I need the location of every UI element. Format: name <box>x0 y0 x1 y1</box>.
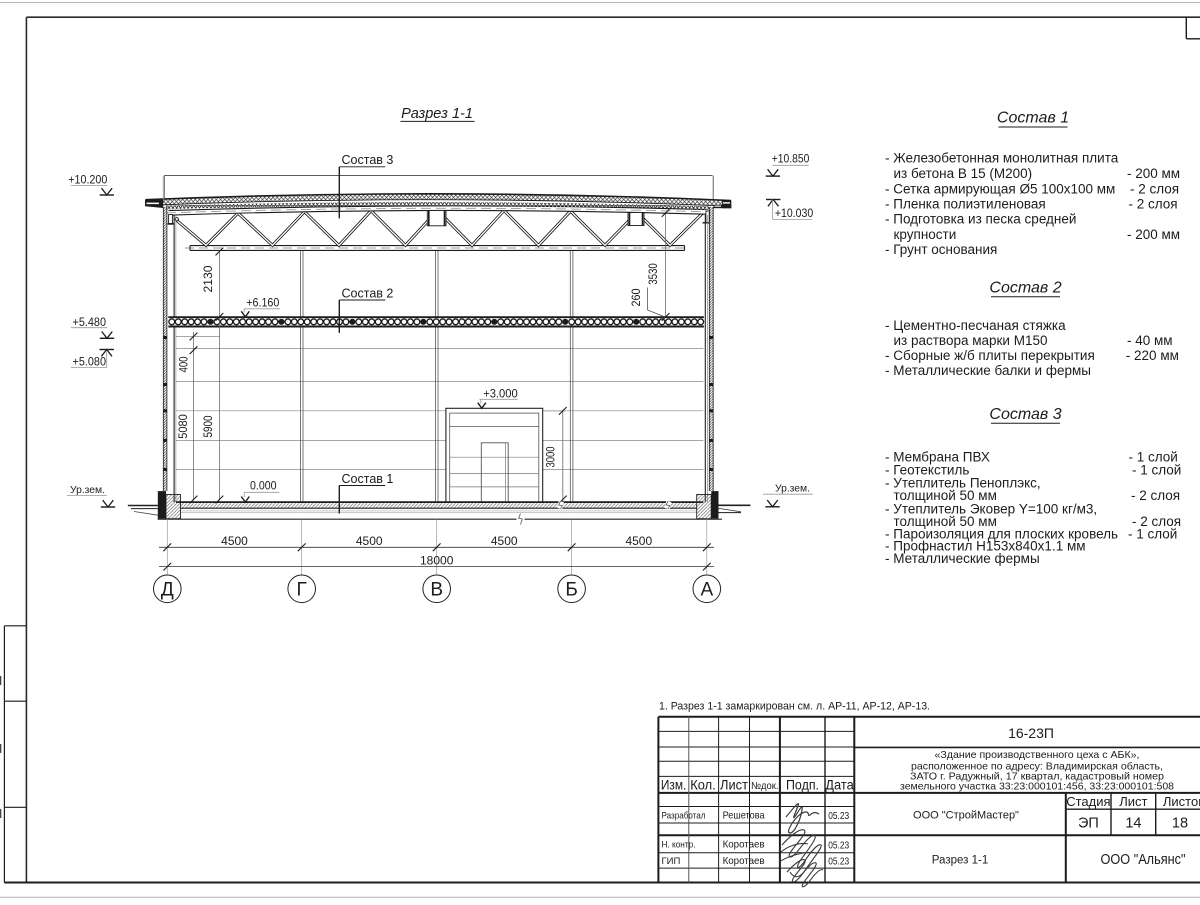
svg-text:ЭП: ЭП <box>1078 815 1099 831</box>
svg-text:Д: Д <box>161 579 174 600</box>
svg-text:- Сетка армирующая Ø5 100х100: - Сетка армирующая Ø5 100х100 мм <box>885 181 1115 196</box>
svg-text:- 1 слой: - 1 слой <box>1128 526 1177 541</box>
svg-text:ООО "Альянс": ООО "Альянс" <box>1101 852 1186 868</box>
svg-text:260: 260 <box>629 288 643 306</box>
svg-text:- 40 мм: - 40 мм <box>1127 333 1173 348</box>
svg-text:- Металлические фермы: - Металлические фермы <box>885 551 1040 566</box>
svg-text:- 1 слой: - 1 слой <box>1132 463 1181 478</box>
svg-text:Коротаев: Коротаев <box>723 839 765 851</box>
svg-text:Решетова: Решетова <box>723 810 765 822</box>
svg-text:05.23: 05.23 <box>828 855 849 867</box>
svg-text:Состав 2: Состав 2 <box>989 279 1061 296</box>
svg-text:05.23: 05.23 <box>828 839 849 851</box>
svg-text:расположенное по адресу: Влади: расположенное по адресу: Владимирская об… <box>911 760 1163 772</box>
svg-text:18: 18 <box>1172 815 1188 831</box>
svg-text:Состав 3: Состав 3 <box>342 153 394 167</box>
svg-text:- Железобетонная монолитная п: - Железобетонная монолитная плита <box>885 151 1119 166</box>
svg-text:толщиной 50 мм: толщиной 50 мм <box>894 488 997 503</box>
svg-text:Лист: Лист <box>720 777 748 792</box>
svg-text:Кол.: Кол. <box>690 777 716 792</box>
svg-text:5080: 5080 <box>176 414 190 439</box>
svg-text:+10.850: +10.850 <box>772 152 810 166</box>
svg-text:4500: 4500 <box>625 534 652 548</box>
svg-text:3000: 3000 <box>544 446 558 467</box>
svg-text:+6.160: +6.160 <box>246 296 279 310</box>
svg-text:Ур.зем.: Ур.зем. <box>775 484 810 495</box>
svg-text:4500: 4500 <box>356 534 383 548</box>
svg-text:«Здание производственного цеха: «Здание производственного цеха с АБК», <box>935 750 1140 761</box>
svg-text:Коротаев: Коротаев <box>723 855 765 867</box>
svg-text:Состав 3: Состав 3 <box>989 406 1061 423</box>
svg-text:Дата: Дата <box>825 777 854 792</box>
svg-text:из раствора марки М150: из раствора марки М150 <box>894 333 1048 348</box>
svg-text:- Цементно-песчаная стяжка: - Цементно-песчаная стяжка <box>885 318 1066 333</box>
svg-text:- 2 слоя: - 2 слоя <box>1130 181 1179 196</box>
svg-text:Листов: Листов <box>1163 794 1200 809</box>
svg-text:- Сборные ж/б плиты перекрытия: - Сборные ж/б плиты перекрытия <box>885 348 1095 363</box>
svg-text:крупности: крупности <box>894 227 957 242</box>
svg-text:- Пленка полиэтиленовая: - Пленка полиэтиленовая <box>885 196 1046 211</box>
svg-text:+10.030: +10.030 <box>775 206 814 220</box>
svg-text:05.23: 05.23 <box>828 810 849 822</box>
svg-text:Состав 1: Состав 1 <box>342 472 394 486</box>
svg-text:Состав 2: Состав 2 <box>342 286 394 300</box>
svg-text:ООО "СтройМастер": ООО "СтройМастер" <box>913 810 1019 822</box>
svg-text:из бетона В 15 (М200): из бетона В 15 (М200) <box>894 166 1033 181</box>
svg-text:ГИП: ГИП <box>662 856 681 867</box>
svg-text:- Грунт основания: - Грунт основания <box>885 242 997 257</box>
svg-text:Разрез 1-1: Разрез 1-1 <box>932 854 988 866</box>
svg-text:Состав 1: Состав 1 <box>997 110 1069 127</box>
svg-text:+5.480: +5.480 <box>73 315 107 329</box>
svg-text:Стадия: Стадия <box>1066 794 1110 809</box>
svg-text:Г: Г <box>297 579 307 600</box>
svg-text:А: А <box>700 579 713 600</box>
svg-text:14: 14 <box>1125 815 1141 831</box>
svg-text:Н. контр.: Н. контр. <box>662 840 696 851</box>
svg-text:Подп.: Подп. <box>786 777 819 792</box>
svg-text:- 200 мм: - 200 мм <box>1127 166 1180 181</box>
svg-text:- 2 слоя: - 2 слоя <box>1129 196 1178 211</box>
svg-text:1. Разрез 1-1 замаркирован см.: 1. Разрез 1-1 замаркирован см. л. АР-11,… <box>659 701 930 713</box>
svg-text:3530: 3530 <box>646 263 660 285</box>
svg-text:400: 400 <box>177 356 191 372</box>
svg-text:- 2 слоя: - 2 слоя <box>1131 488 1180 503</box>
svg-text:0.000: 0.000 <box>250 479 277 493</box>
svg-text:Разработал: Разработал <box>662 810 706 821</box>
svg-text:5900: 5900 <box>201 415 215 437</box>
svg-text:4500: 4500 <box>491 534 518 548</box>
svg-text:- Подготовка из песка средней: - Подготовка из песка средней <box>885 212 1076 227</box>
svg-text:№док.: №док. <box>751 781 779 792</box>
svg-text:Лист: Лист <box>1119 794 1147 809</box>
svg-text:Б: Б <box>565 579 577 600</box>
svg-text:+5.080: +5.080 <box>73 354 107 368</box>
svg-text:Ур.зем.: Ур.зем. <box>70 485 105 496</box>
svg-text:18000: 18000 <box>420 553 454 567</box>
svg-text:- 200 мм: - 200 мм <box>1127 227 1180 242</box>
svg-text:4500: 4500 <box>221 534 248 548</box>
svg-text:Разрез 1-1: Разрез 1-1 <box>401 106 473 122</box>
svg-text:В: В <box>430 579 443 600</box>
svg-text:16-23П: 16-23П <box>1008 725 1054 741</box>
svg-text:- Металлические балки и фермы: - Металлические балки и фермы <box>885 363 1091 378</box>
svg-text:- 220 мм: - 220 мм <box>1126 348 1179 363</box>
svg-text:+3.000: +3.000 <box>483 386 518 400</box>
svg-text:2130: 2130 <box>201 265 215 292</box>
svg-text:+10.200: +10.200 <box>68 172 107 186</box>
svg-text:земельного участка 33:23:00010: земельного участка 33:23:000101:456, 33:… <box>900 782 1174 793</box>
svg-text:Изм.: Изм. <box>661 777 687 792</box>
